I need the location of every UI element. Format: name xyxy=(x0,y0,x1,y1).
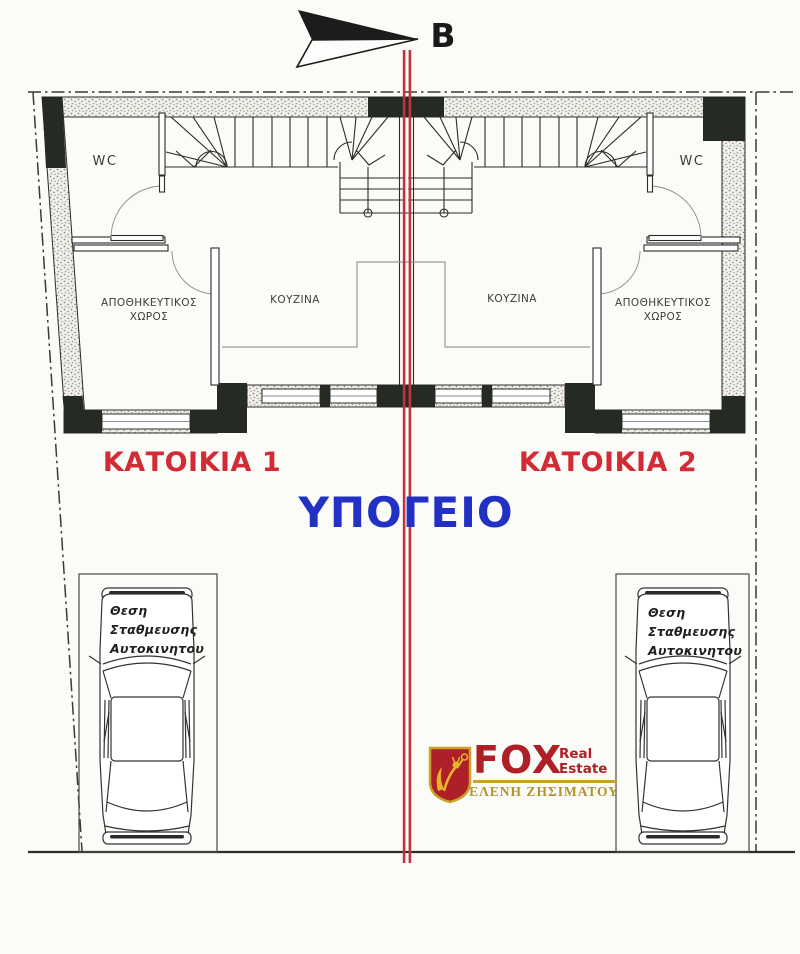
room-label-wc-left: WC xyxy=(80,154,130,169)
parking-label-left: Θεση Σταθμευσης Αυτοκινητου xyxy=(110,601,220,658)
logo-gold-rule xyxy=(473,780,617,783)
logo-tagline: Real Estate xyxy=(559,747,607,776)
basement-plan-page: Β WC WC ΑΠΟΘΗΚΕΥΤΙΚΟΣ ΧΩΡΟΣ ΑΠΟΘΗΚΕΥΤΙΚΟ… xyxy=(0,0,800,954)
fox-shield-icon xyxy=(428,746,472,804)
wc-door-arc-left xyxy=(111,186,163,238)
fox-real-estate-logo: FOX Real Estate ΕΛΕΝΗ ΖΗΣΙΜΑΤΟΥ xyxy=(420,740,635,802)
unit-label-1: ΚΑΤΟΙΚΙΑ 1 xyxy=(82,447,302,478)
room-label-storage-left: ΑΠΟΘΗΚΕΥΤΙΚΟΣ ΧΩΡΟΣ xyxy=(74,297,224,324)
room-label-kitchen-left: ΚΟΥΖΙΝΑ xyxy=(235,294,355,308)
party-wall xyxy=(222,117,590,385)
logo-brand-text: FOX xyxy=(473,741,562,779)
room-label-storage-right: ΑΠΟΘΗΚΕΥΤΙΚΟΣ ΧΩΡΟΣ xyxy=(588,297,738,324)
staircase-left xyxy=(159,113,404,217)
floor-label: ΥΠΟΓΕΙΟ xyxy=(256,488,556,537)
division-line xyxy=(403,50,411,863)
storage-door-arc-left xyxy=(172,251,214,294)
unit-label-2: ΚΑΤΟΙΚΙΑ 2 xyxy=(498,447,718,478)
staircase-right xyxy=(340,113,653,217)
wc-door-arc-right xyxy=(649,186,701,238)
room-label-kitchen-right: ΚΟΥΖΙΝΑ xyxy=(452,293,572,307)
north-label: Β xyxy=(428,16,458,55)
room-label-wc-right: WC xyxy=(667,154,717,169)
interior-walls-right xyxy=(593,186,740,385)
exterior-walls xyxy=(42,97,745,432)
storage-door-arc-right xyxy=(598,251,640,294)
interior-walls-left xyxy=(72,186,219,385)
parking-label-right: Θεση Σταθμευσης Αυτοκινητου xyxy=(648,603,758,660)
north-arrow-icon xyxy=(297,10,418,67)
logo-agent-name: ΕΛΕΝΗ ΖΗΣΙΜΑΤΟΥ xyxy=(468,784,620,800)
